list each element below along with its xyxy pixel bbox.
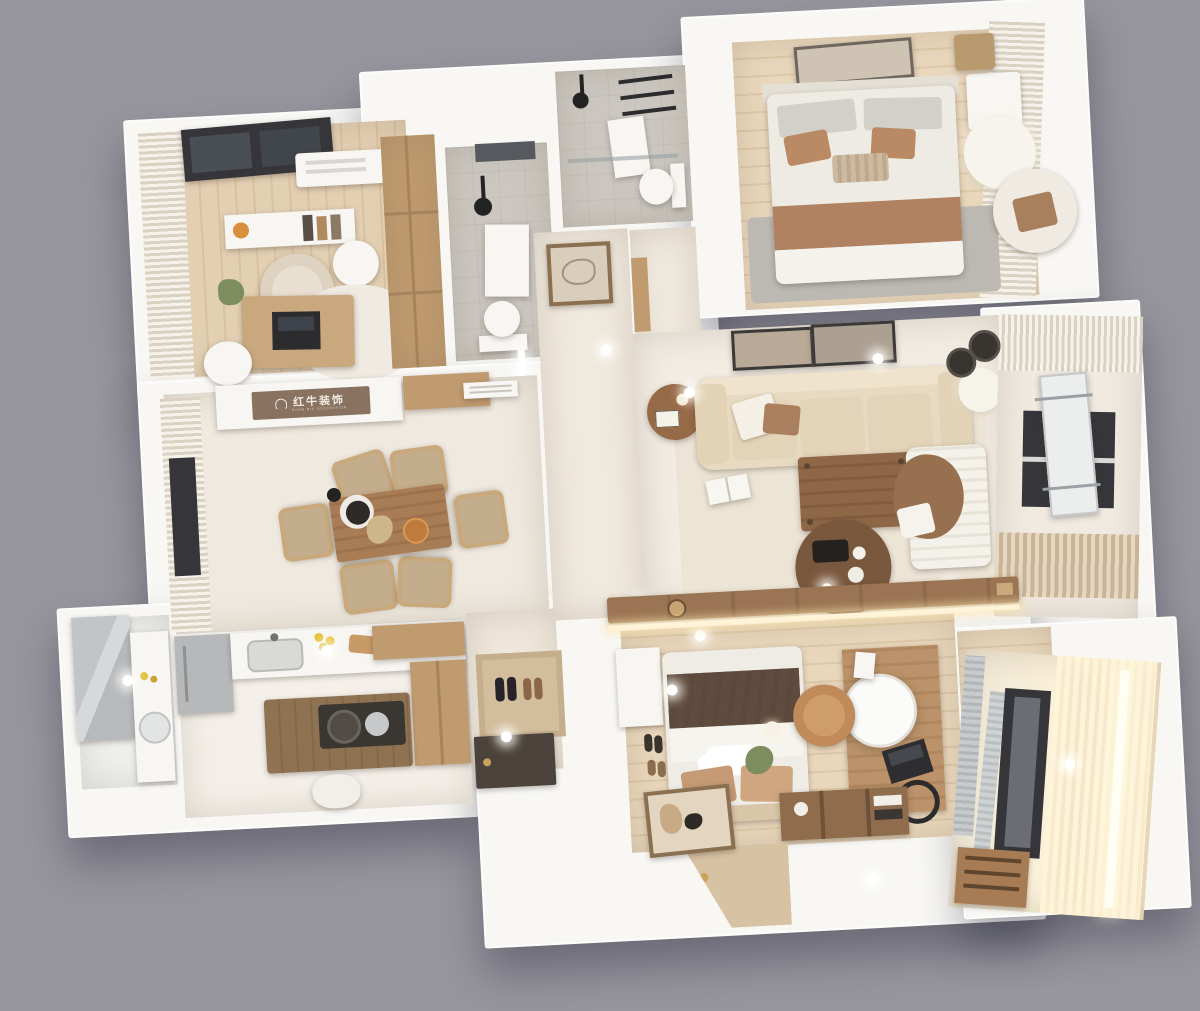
tall-cabinet	[410, 659, 471, 766]
door-handle	[483, 758, 491, 766]
sofa-pillow	[762, 403, 800, 436]
brand-sign: 红牛装饰 HONG NIU DECORATION	[251, 386, 370, 420]
kitchen-stool	[312, 773, 362, 809]
slippers	[657, 761, 666, 777]
sofa-cushion	[866, 393, 933, 454]
bathroom-mirror	[475, 141, 536, 162]
chaise-lounge	[891, 443, 997, 570]
dark-blanket	[667, 668, 802, 729]
bull-logo-icon	[275, 398, 288, 411]
wicker-basket	[954, 33, 996, 71]
console-book	[996, 583, 1013, 596]
shelf-clock	[794, 802, 809, 817]
toilet	[477, 300, 528, 352]
shower-head	[474, 197, 493, 216]
shoe	[495, 677, 505, 701]
shoe	[523, 678, 532, 700]
bedroom2-bed	[762, 75, 969, 291]
slippers	[644, 734, 653, 752]
teacup	[847, 566, 864, 583]
sign-cabinet: 红牛装饰 HONG NIU DECORATION	[215, 376, 403, 430]
dining-room: 红牛装饰 HONG NIU DECORATION	[163, 375, 549, 634]
striped-pillow	[832, 153, 889, 184]
study-room	[144, 120, 419, 379]
ceiling-vent	[463, 380, 518, 399]
balcony-curtain-top	[998, 314, 1143, 373]
towel	[485, 225, 529, 297]
sink	[246, 638, 304, 673]
plant	[218, 278, 245, 305]
shelf-books	[873, 795, 901, 806]
console-clock	[667, 599, 687, 619]
lemon	[314, 633, 323, 642]
laundry-counter	[130, 631, 176, 783]
kitchen-island	[264, 692, 414, 774]
shoe	[507, 677, 517, 701]
dining-chair	[397, 556, 453, 608]
book	[655, 410, 680, 428]
floorplan-render: 红牛装饰 HONG NIU DECORATION	[0, 0, 1200, 1011]
teacup	[852, 546, 866, 560]
bathroom-top	[555, 65, 693, 228]
slippers	[647, 760, 656, 776]
light-strip	[1104, 670, 1130, 908]
side-balcony	[994, 314, 1143, 618]
pillow	[863, 97, 942, 130]
towel-ladder	[618, 72, 677, 122]
slippers	[654, 735, 663, 753]
hallway-door	[631, 257, 651, 332]
study-window-desk	[224, 209, 356, 250]
hallway-art-frame	[546, 241, 613, 306]
bedroom-2	[732, 27, 1040, 310]
fridge	[174, 634, 234, 715]
balcony-bookshelf	[954, 847, 1030, 908]
dining-chair	[453, 489, 510, 549]
books	[302, 215, 313, 241]
dining-chair	[277, 502, 334, 562]
toilet	[638, 161, 687, 213]
black-tray	[812, 539, 849, 563]
wall-frame	[731, 327, 815, 371]
shelf-box	[779, 786, 909, 841]
shower-head	[572, 92, 589, 109]
sofa-arm	[694, 383, 730, 465]
books	[316, 216, 327, 240]
shoe	[534, 677, 543, 699]
upper-cabinet	[372, 621, 466, 660]
chair-pillow	[1012, 191, 1059, 233]
glowing-curtain	[1040, 656, 1158, 920]
leaning-frame	[643, 783, 735, 858]
study-desk	[242, 295, 355, 369]
sofa-cushion	[799, 396, 866, 457]
dining-chair	[339, 559, 399, 616]
study-side-table	[332, 239, 380, 287]
entry	[465, 609, 563, 773]
master-balcony	[948, 649, 1162, 920]
doormat	[475, 650, 565, 740]
paper	[853, 652, 875, 680]
wall-frame	[811, 320, 897, 366]
shelf-books	[874, 809, 902, 820]
fruit-bowl	[233, 222, 250, 239]
master-cabinet	[615, 647, 663, 727]
laundry-bath	[73, 615, 178, 790]
books	[330, 214, 341, 239]
laptop	[272, 311, 321, 350]
wardrobe-divider	[404, 136, 419, 368]
front-door	[474, 733, 557, 789]
